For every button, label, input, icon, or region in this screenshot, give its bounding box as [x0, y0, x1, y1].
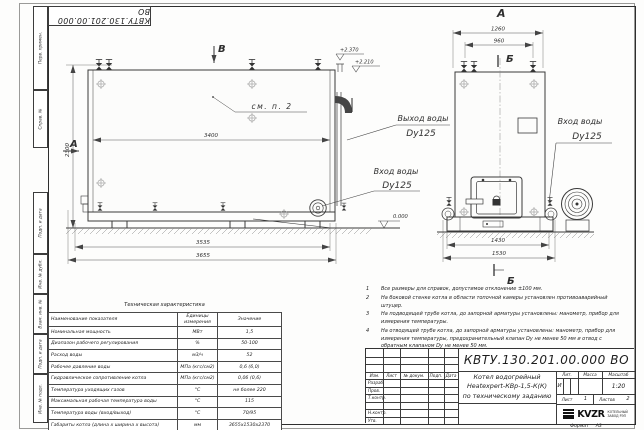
blower-fan	[562, 189, 593, 232]
zero-elevation	[378, 221, 400, 228]
outlet-elbow	[335, 96, 352, 113]
note-3: 3На подводящей трубе котла, до запорной …	[366, 311, 628, 327]
row-razrab: Разраб.	[366, 379, 402, 387]
front-left-fitting	[81, 196, 88, 204]
front-leg-3	[305, 221, 320, 228]
svg-text:Dy125: Dy125	[572, 132, 602, 142]
side-left-valve	[446, 197, 451, 205]
dim-3655: 3655	[196, 253, 210, 259]
front-leg-2	[230, 221, 245, 228]
dim-960: 960	[494, 39, 505, 45]
svg-text:Dy125: Dy125	[382, 181, 412, 191]
scale-value: 1:20	[602, 378, 635, 394]
top-valve-2	[106, 60, 112, 71]
elev-0000: 0.000	[393, 214, 409, 220]
lit-label: Лит.	[556, 371, 578, 378]
product-name: Котел водогрейный Heatexpert-КВр-1,5-К(К…	[458, 371, 556, 403]
see-note-text: см. п. 2	[252, 102, 293, 111]
svg-text:Вход воды: Вход воды	[558, 117, 603, 126]
notes-list: 1Все размеры для справок, допустимое отк…	[366, 286, 628, 352]
col-value: Значение	[218, 313, 282, 327]
title-block: Изм. Лист № докум. Подп. Дата Разраб. Пр…	[365, 348, 634, 423]
row-nkontr: Н.контр.	[366, 409, 402, 417]
top-valve-4	[315, 60, 321, 71]
sheet-label: Лист	[556, 394, 578, 404]
tech-table: Наименование показателя Единицы измерени…	[48, 312, 282, 430]
front-base-frame	[88, 212, 335, 221]
title-block-doc-number: КВТУ.130.201.00.000 ВО	[458, 349, 635, 371]
table-row: Диапазон рабочего регулирования%50-100	[49, 338, 282, 350]
table-row: Габариты котла (длина х ширина х высота)…	[49, 419, 282, 430]
sheet-value: 1	[578, 394, 593, 404]
section-v-letter: В	[218, 44, 226, 55]
table-row: Гидравлическое сопротивление котлаМПа (к…	[49, 373, 282, 385]
table-row: Номинальная мощностьМВт1,5	[49, 327, 282, 339]
dim-1430: 1430	[491, 238, 505, 244]
door-handle	[466, 199, 483, 204]
col-doc: № докум.	[400, 372, 428, 380]
svg-text:Выход воды: Выход воды	[398, 114, 449, 123]
col-izm: Изм.	[366, 372, 383, 380]
col-list: Лист	[383, 372, 400, 380]
col-name: Наименование показателя	[49, 313, 178, 327]
front-outlet-pipe	[335, 64, 352, 206]
dim-1260: 1260	[491, 27, 505, 33]
tech-table-title: Техническая характеристика	[48, 302, 281, 308]
side-right-valve	[547, 197, 552, 205]
kvzr-logo-subtext: КОТЕЛЬНЫЙ ЗАВОД РЭП	[608, 410, 628, 418]
format-note: Формат А3	[556, 424, 616, 429]
section-a-letter: А	[69, 139, 78, 150]
front-ground	[66, 228, 400, 234]
kvzr-logo: KVZR КОТЕЛЬНЫЙ ЗАВОД РЭП	[556, 404, 635, 424]
table-row: Рабочее давление водыМПа (кгс/см2)0,6 (6…	[49, 361, 282, 373]
col-podp: Подп.	[428, 372, 444, 380]
sheets-value: 2	[621, 394, 635, 404]
col-data: Дата	[444, 372, 458, 380]
front-leg-1	[112, 221, 127, 228]
side-ground	[437, 232, 594, 238]
row-utv: Утв.	[366, 417, 402, 425]
lit-value: И	[556, 378, 563, 394]
section-b-top-letter: Б	[506, 54, 514, 65]
massa-label: Масса	[578, 371, 602, 378]
front-outlet-label: Выход воды Dy125	[347, 114, 450, 140]
dim-3400: 3400	[204, 133, 218, 139]
kvzr-logo-icon	[563, 409, 574, 419]
side-view-label: А	[496, 7, 506, 20]
dim-1530: 1530	[492, 251, 506, 257]
scale-label: Масштаб	[602, 371, 635, 378]
table-row: Температура уходящих газов°Сне более 220	[49, 384, 282, 396]
svg-text:Вход воды: Вход воды	[374, 167, 419, 176]
table-row: Температура воды (вход/выход)°С70/95	[49, 408, 282, 420]
dim-3535: 3535	[196, 240, 210, 246]
side-inlet-label: Вход воды Dy125	[549, 117, 612, 203]
table-row: Максимальная рабочая температура воды°С1…	[49, 396, 282, 408]
row-prov: Пров.	[366, 387, 402, 395]
top-valve-1	[96, 60, 102, 71]
row-tkontr: Т.контр.	[366, 394, 402, 402]
elev-2210: +2.210	[355, 60, 374, 66]
drain-tap-4	[342, 203, 346, 210]
sheets-label: Листов	[593, 394, 621, 404]
col-unit: Единицы измерения	[178, 313, 218, 327]
note-2: 2На боковой стенке котла в области топоч…	[366, 295, 628, 311]
elev-2370: +2.370	[340, 48, 359, 54]
drawing-sheet: Перв. примен. Справ. № Подп. и дата Инв.…	[0, 0, 644, 430]
top-valve-3	[249, 60, 255, 71]
kvzr-logo-text: KVZR	[577, 409, 604, 420]
svg-text:Dy125: Dy125	[406, 129, 436, 139]
table-row: Расход водым3/ч52	[49, 350, 282, 362]
note-1: 1Все размеры для справок, допустимое отк…	[366, 286, 628, 294]
tech-table-header-row: Наименование показателя Единицы измерени…	[49, 313, 282, 327]
